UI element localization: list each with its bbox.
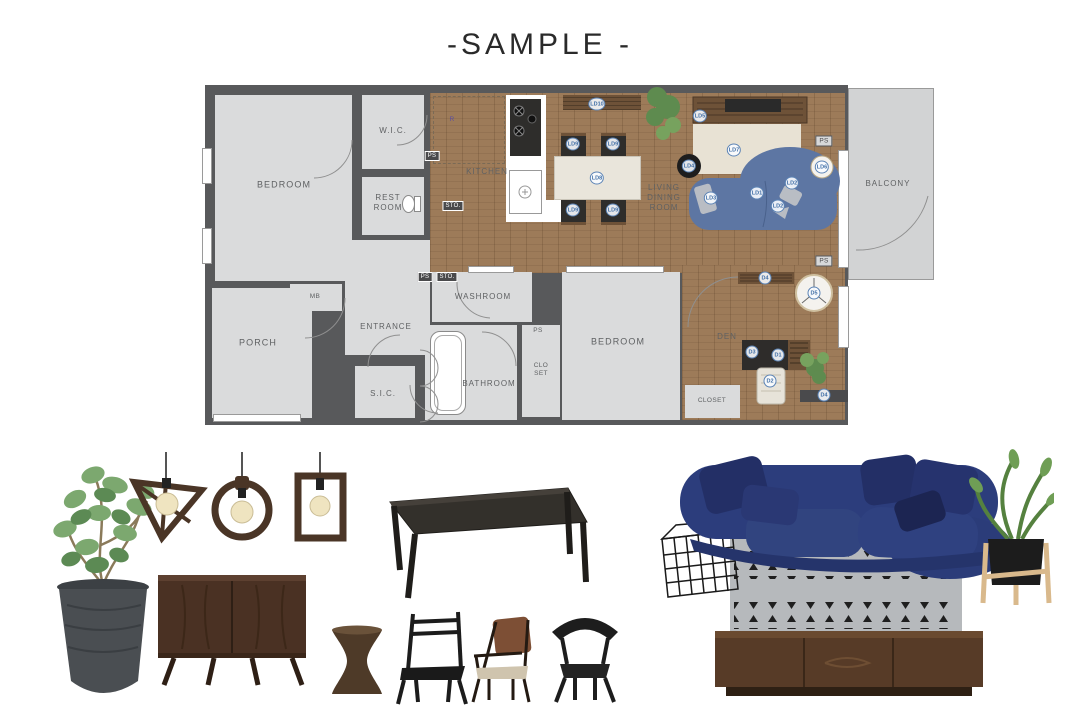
ps-label: PS — [533, 327, 542, 335]
ps-tag: PS — [425, 151, 440, 161]
interior-sample-board: -SAMPLE - — [0, 0, 1080, 720]
room-label-sic: S.I.C. — [370, 389, 396, 399]
room-label-washroom: WASHROOM — [455, 292, 511, 302]
room-label-wic: W.I.C. — [379, 126, 407, 136]
sto-tag: STO. — [442, 201, 463, 211]
marker-d3: D3 — [746, 346, 759, 359]
marker-d4: D4 — [759, 272, 772, 285]
ps-tag: PS — [815, 256, 832, 267]
room-label-den: DEN — [717, 332, 737, 342]
armchair-brown-image — [468, 616, 540, 704]
chair-curved-image — [548, 612, 622, 704]
dining-chair-black-image — [395, 610, 475, 706]
sto-tag: STO. — [436, 272, 457, 282]
sofa-composition-image — [650, 443, 1054, 709]
floor-plan: BEDROOM W.I.C. REST ROOM KITCHEN LIVING … — [0, 0, 1080, 440]
room-label-entrance: ENTRANCE — [360, 322, 412, 332]
marker-d4: D4 — [818, 389, 831, 402]
room-label-closet-small: CLO SET — [529, 362, 553, 378]
dining-table-image — [375, 480, 590, 608]
room-label-bedroom2: BEDROOM — [591, 336, 645, 347]
room-label-den-closet: CLOSET — [698, 397, 726, 405]
room-label-restroom: REST ROOM — [367, 193, 409, 213]
refrigerator-label: R — [449, 116, 454, 124]
ps-tag: PS — [815, 136, 832, 147]
furniture-board — [0, 440, 1080, 720]
room-label-porch: PORCH — [239, 337, 277, 348]
marker-d2: D2 — [764, 375, 777, 388]
room-label-balcony: BALCONY — [866, 179, 911, 189]
sideboard-image — [152, 565, 312, 687]
room-label-bathroom: BATHROOM — [462, 379, 515, 389]
room-label-kitchen: KITCHEN — [466, 167, 508, 177]
pendant-lights-image — [120, 452, 355, 572]
room-label-bedroom1: BEDROOM — [257, 179, 311, 190]
room-label-living: LIVING DINING ROOM — [638, 183, 690, 213]
stool-image — [326, 622, 388, 702]
marker-d1: D1 — [772, 349, 785, 362]
ps-tag: PS — [418, 272, 433, 282]
marker-d5: D5 — [808, 287, 821, 300]
room-label-mb: MB — [310, 293, 321, 301]
